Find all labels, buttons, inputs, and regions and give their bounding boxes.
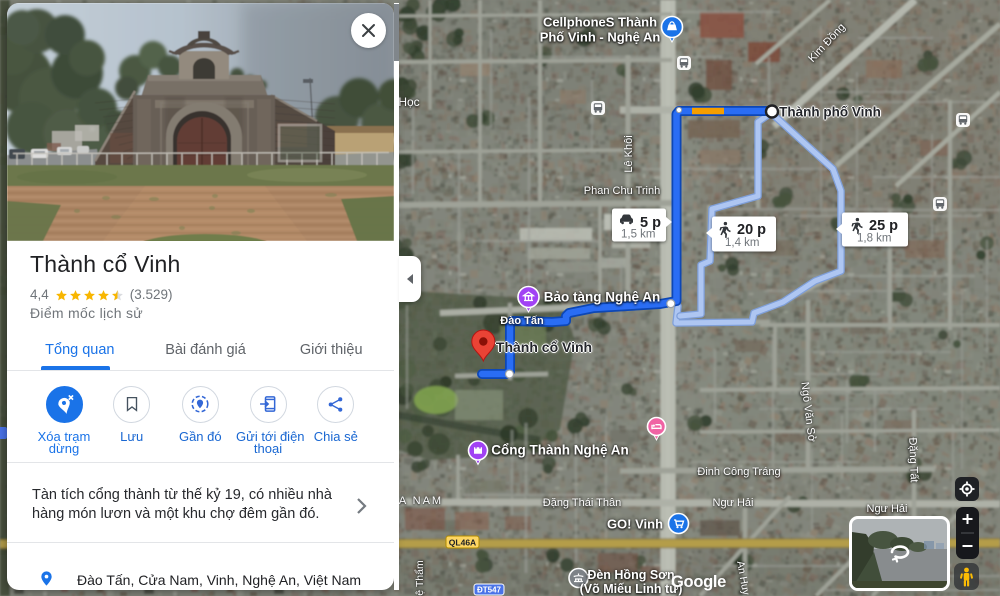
svg-text:20 p: 20 p [737, 222, 766, 238]
svg-text:ĐT547: ĐT547 [477, 586, 502, 595]
svg-text:1,8 km: 1,8 km [857, 233, 892, 245]
svg-text:1,5 km: 1,5 km [621, 229, 656, 241]
svg-text:QL46A: QL46A [449, 538, 476, 548]
svg-text:1,4 km: 1,4 km [725, 237, 760, 249]
